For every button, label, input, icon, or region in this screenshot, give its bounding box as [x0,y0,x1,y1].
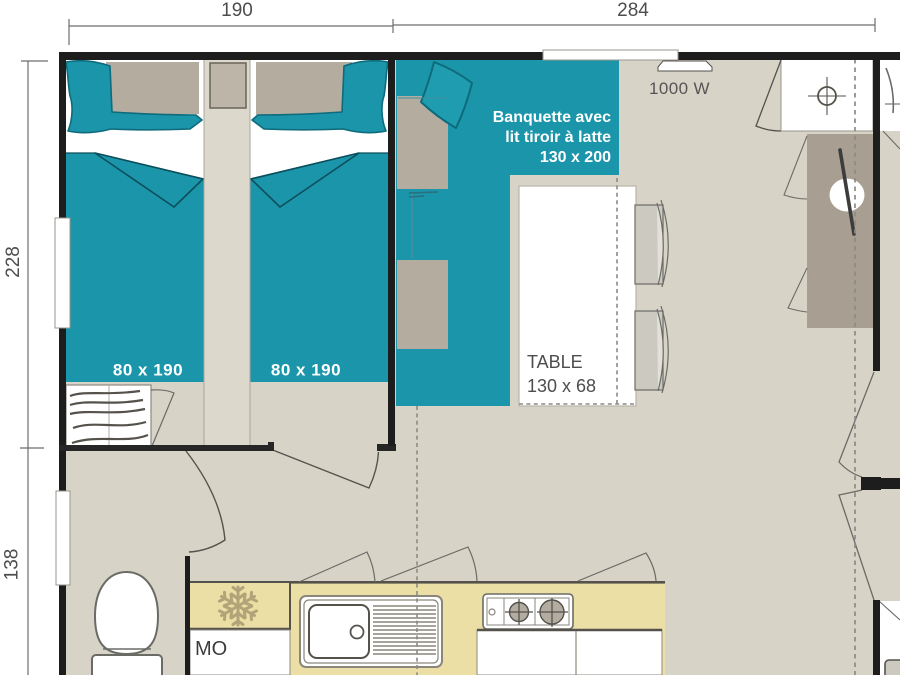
svg-text:130 x 200: 130 x 200 [540,149,611,166]
svg-text:1000 W: 1000 W [649,79,710,98]
svg-text:284: 284 [617,0,649,21]
svg-text:80 x 190: 80 x 190 [271,361,341,380]
svg-text:130 x 68: 130 x 68 [527,376,596,396]
svg-text:MO: MO [195,638,227,660]
svg-text:190: 190 [221,0,253,21]
svg-text:80 x 190: 80 x 190 [113,361,183,380]
svg-text:lit tiroir à latte: lit tiroir à latte [505,129,611,146]
svg-text:TABLE: TABLE [527,352,583,372]
svg-text:228: 228 [3,246,24,278]
svg-text:138: 138 [2,549,23,581]
svg-text:Banquette avec: Banquette avec [493,109,611,126]
